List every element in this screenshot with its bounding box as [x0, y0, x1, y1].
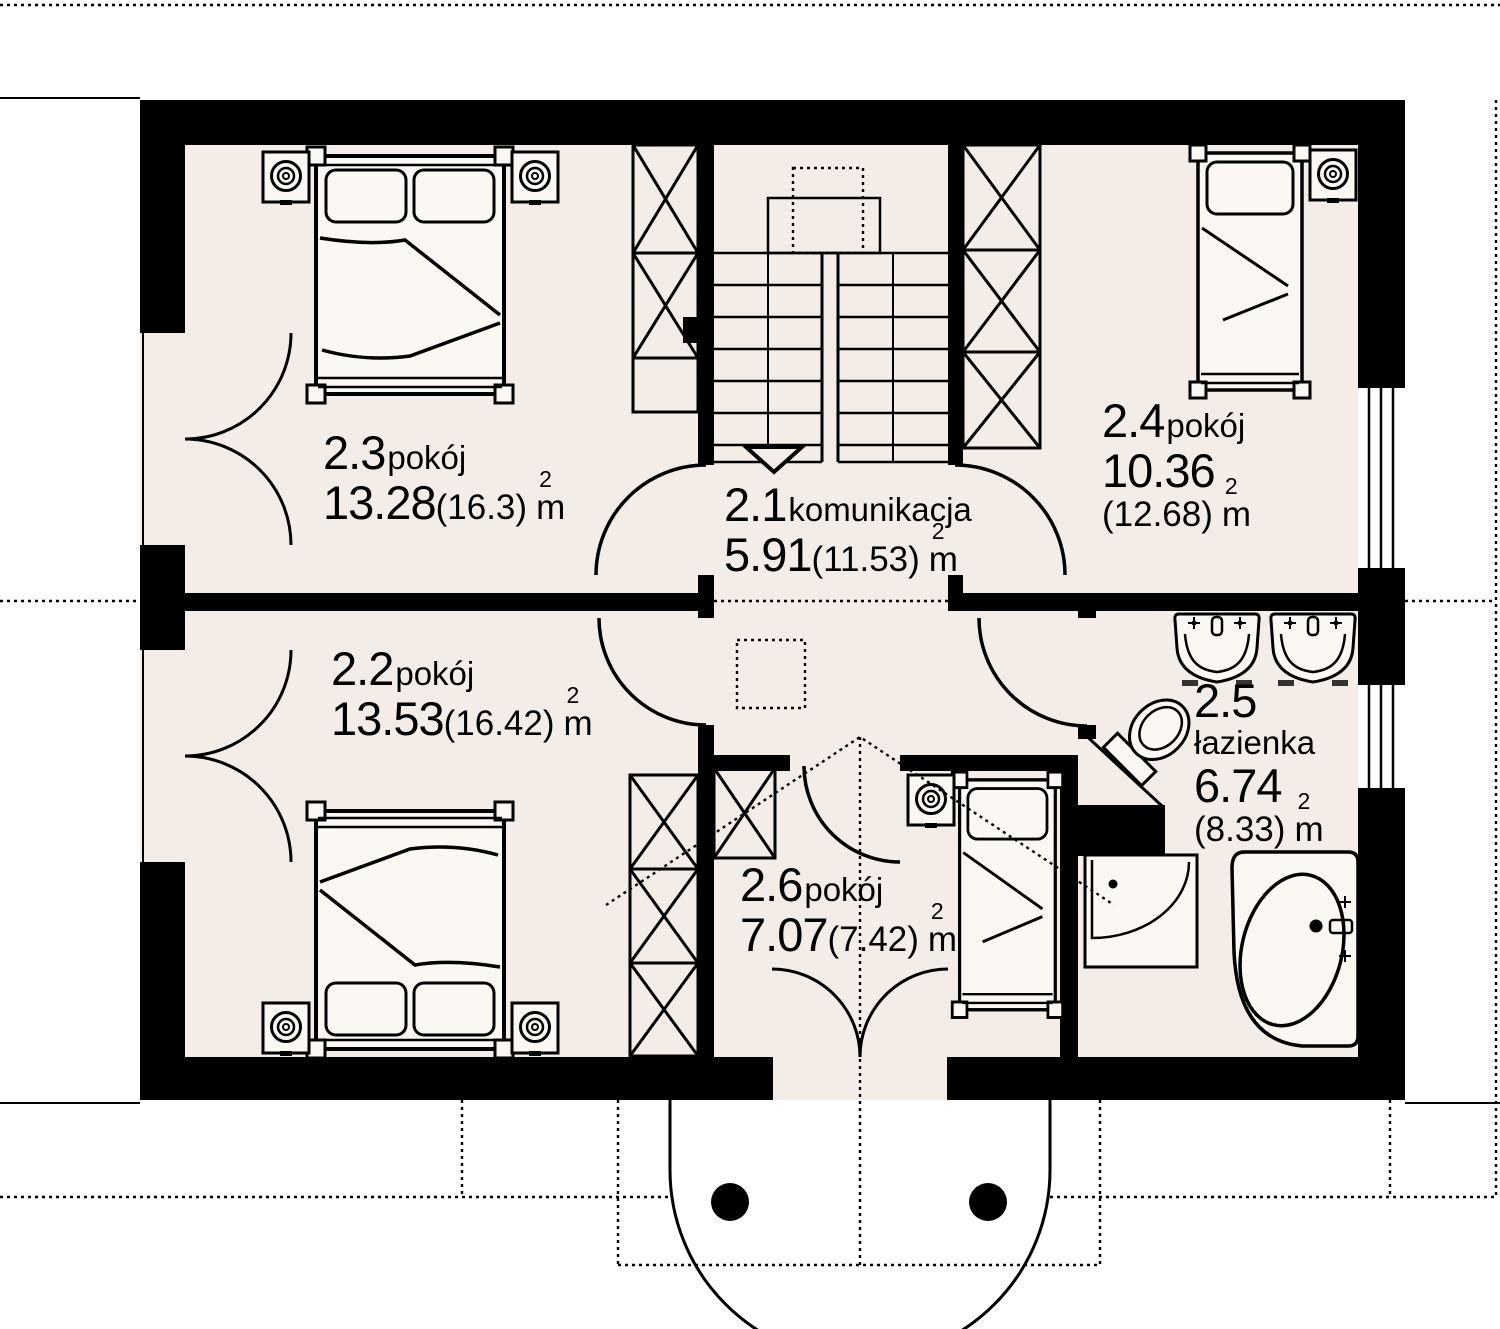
area-unit: 2m	[929, 541, 958, 578]
room-number: 2.4	[1102, 396, 1164, 446]
area-unit: 2m	[564, 705, 593, 742]
floor-plan: 2.1komunikacja 5.91(11.53)2m 2.2pokój 13…	[0, 0, 1500, 1329]
area-unit: 2m	[1294, 811, 1323, 848]
balcony-door-opening	[772, 1057, 948, 1100]
room-area: 10.36	[1102, 446, 1215, 496]
room-label-2-5: 2.5 łazienka 6.74 (8.33)2m	[1194, 676, 1324, 848]
nightstand-lamp	[1310, 150, 1356, 203]
room-number: 2.6	[740, 860, 802, 910]
floor-plan-drawing	[0, 0, 1500, 1329]
room-area-gross: (16.3)	[436, 489, 527, 526]
room-area-gross: (7.42)	[827, 921, 918, 958]
window-bathroom	[1358, 685, 1405, 788]
french-door-niche-2-3	[140, 333, 185, 545]
room-label-2-2: 2.2pokój 13.53(16.42)2m	[331, 644, 593, 744]
room-name: pokój	[395, 657, 474, 692]
area-unit: 2m	[536, 489, 565, 526]
room-number: 2.3	[323, 428, 385, 478]
room-label-2-3: 2.3pokój 13.28(16.3)2m	[323, 428, 565, 528]
room-label-2-6: 2.6pokój 7.07(7.42)2m	[740, 860, 957, 960]
double-bed-room-2-3	[307, 147, 513, 403]
room-label-2-4: 2.4pokój 10.36 (12.68)2m	[1102, 396, 1251, 533]
nightstand-lamp	[908, 775, 954, 828]
room-area-gross: (16.42)	[444, 705, 555, 742]
window-room-2-4	[1358, 388, 1405, 568]
nightstand-lamp	[263, 152, 309, 205]
nightstand-lamp	[512, 152, 558, 205]
room-label-2-1: 2.1komunikacja 5.91(11.53)2m	[724, 480, 972, 580]
area-unit: 2m	[928, 921, 957, 958]
single-bed-room-2-4	[1190, 145, 1310, 398]
room-number: 2.5	[1194, 676, 1256, 726]
area-unit: 2m	[1222, 496, 1251, 533]
room-name: pokój	[804, 873, 883, 908]
room-name: łazienka	[1194, 726, 1315, 761]
room-name: pokój	[1166, 409, 1245, 444]
room-area-gross: (8.33)	[1194, 811, 1285, 848]
french-door-niche-2-2	[140, 650, 185, 862]
room-area: 13.53	[331, 694, 444, 744]
balcony-column	[969, 1183, 1007, 1221]
room-area: 5.91	[724, 530, 811, 580]
room-area: 6.74	[1194, 761, 1281, 811]
room-area: 7.07	[740, 910, 827, 960]
double-bed-room-2-2	[307, 802, 513, 1058]
room-name: pokój	[387, 441, 466, 476]
nightstand-lamp	[263, 1003, 309, 1056]
nightstand-lamp	[512, 1003, 558, 1056]
room-area-gross: (11.53)	[811, 541, 919, 578]
balcony-column	[711, 1183, 749, 1221]
shower-icon	[1085, 855, 1197, 967]
room-area-gross: (12.68)	[1102, 496, 1213, 533]
room-number: 2.2	[331, 644, 393, 694]
room-area: 13.28	[323, 478, 436, 528]
room-number: 2.1	[724, 480, 786, 530]
